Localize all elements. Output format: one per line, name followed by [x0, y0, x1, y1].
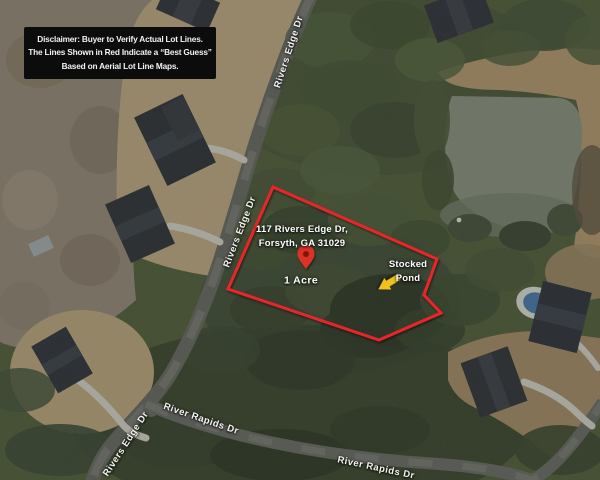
satellite-imagery — [0, 0, 600, 480]
aerial-lot-map: Disclaimer: Buyer to Verify Actual Lot L… — [0, 0, 600, 480]
